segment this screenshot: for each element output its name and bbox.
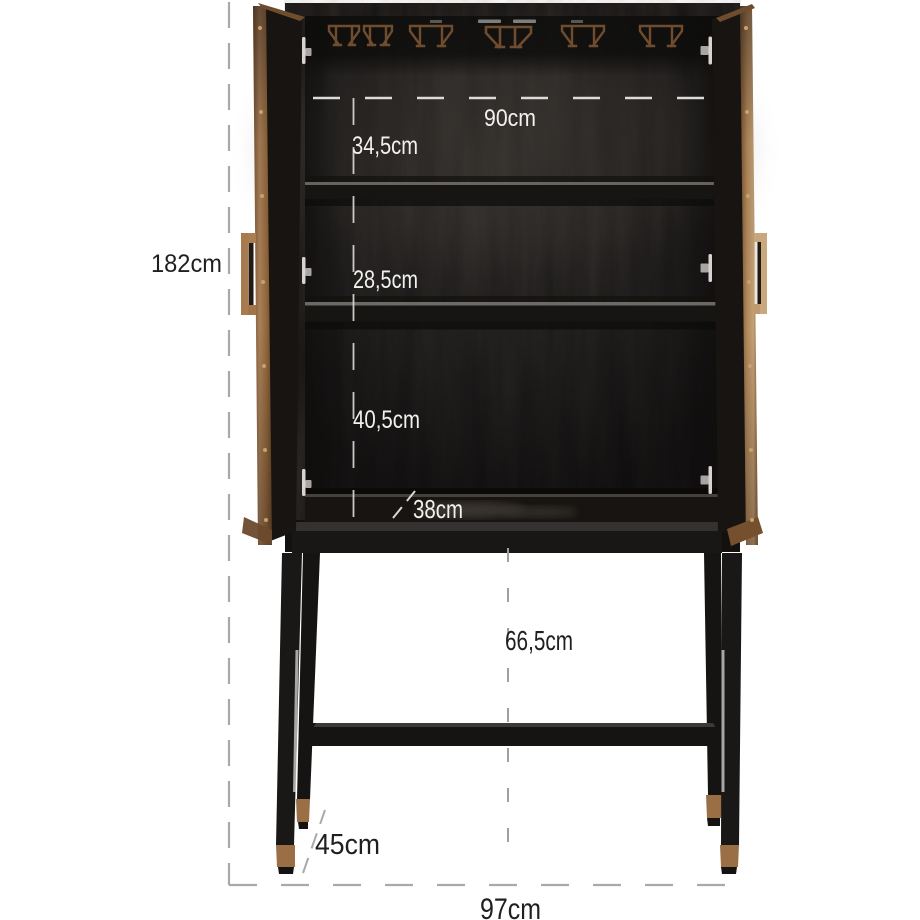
svg-text:38cm: 38cm [413, 494, 463, 524]
svg-text:97cm: 97cm [480, 893, 541, 920]
svg-text:90cm: 90cm [484, 105, 536, 132]
svg-text:45cm: 45cm [315, 829, 380, 861]
svg-text:66,5cm: 66,5cm [505, 625, 573, 656]
svg-text:40,5cm: 40,5cm [353, 406, 420, 434]
svg-text:34,5cm: 34,5cm [352, 132, 418, 160]
svg-text:28,5cm: 28,5cm [353, 266, 418, 294]
svg-text:182cm: 182cm [151, 250, 222, 278]
